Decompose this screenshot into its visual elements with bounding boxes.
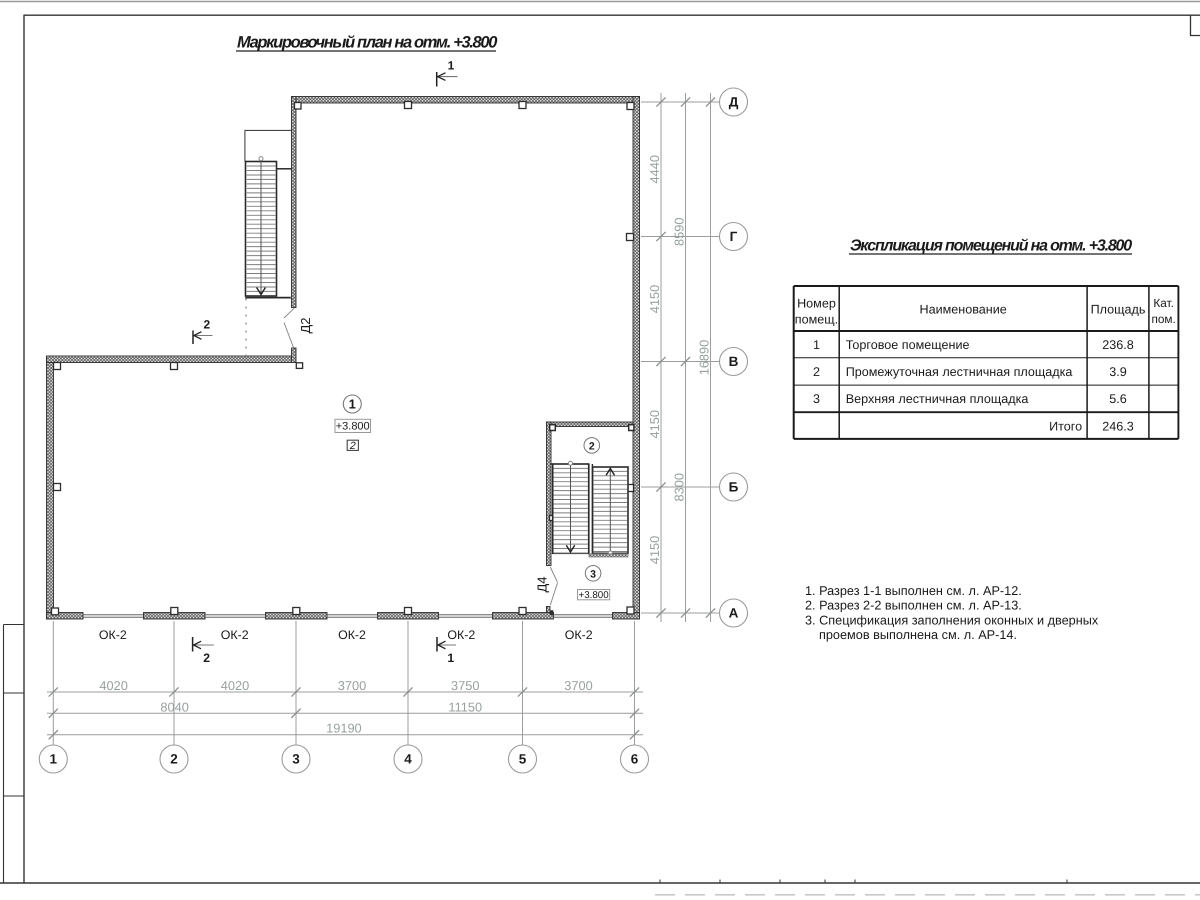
svg-text:Д2: Д2 bbox=[298, 317, 313, 333]
svg-text:4150: 4150 bbox=[647, 536, 662, 564]
svg-text:4150: 4150 bbox=[647, 285, 662, 313]
svg-text:6: 6 bbox=[631, 752, 639, 767]
svg-text:1: 1 bbox=[447, 651, 454, 665]
svg-text:4020: 4020 bbox=[221, 678, 249, 693]
svg-text:2: 2 bbox=[204, 318, 211, 332]
svg-text:Б: Б bbox=[729, 480, 739, 495]
svg-text:1: 1 bbox=[349, 397, 356, 412]
svg-text:Кат.: Кат. bbox=[1153, 296, 1174, 310]
svg-text:3. Спецификация заполнения око: 3. Спецификация заполнения оконных и две… bbox=[805, 613, 1099, 627]
svg-text:1: 1 bbox=[448, 59, 455, 73]
svg-text:3700: 3700 bbox=[564, 678, 592, 693]
svg-text:246.3: 246.3 bbox=[1102, 420, 1134, 434]
svg-text:пом.: пом. bbox=[1151, 312, 1175, 326]
svg-text:8300: 8300 bbox=[672, 473, 687, 501]
svg-text:Г: Г bbox=[730, 229, 738, 244]
svg-text:2: 2 bbox=[589, 441, 595, 453]
svg-text:4: 4 bbox=[404, 752, 412, 767]
svg-text:+3.800: +3.800 bbox=[336, 421, 370, 433]
svg-text:16890: 16890 bbox=[697, 340, 712, 376]
svg-text:А: А bbox=[729, 606, 739, 621]
svg-text:ОК-2: ОК-2 bbox=[99, 628, 127, 642]
svg-text:2. Разрез 2-2 выполнен см. л.: 2. Разрез 2-2 выполнен см. л. АР-13. bbox=[805, 599, 1022, 613]
svg-text:2: 2 bbox=[349, 440, 356, 452]
svg-text:Маркировочный план на отм. +3.: Маркировочный план на отм. +3.800 bbox=[237, 34, 498, 52]
svg-text:19190: 19190 bbox=[326, 721, 362, 736]
svg-text:помещ.: помещ. bbox=[795, 313, 838, 327]
svg-text:Д: Д bbox=[729, 95, 739, 110]
svg-text:проемов выполнена см. л. АР-14: проемов выполнена см. л. АР-14. bbox=[819, 628, 1017, 642]
svg-text:Итого: Итого bbox=[1049, 420, 1082, 434]
svg-text:ОК-2: ОК-2 bbox=[338, 628, 366, 642]
svg-text:3.9: 3.9 bbox=[1109, 365, 1127, 379]
svg-text:3: 3 bbox=[590, 569, 596, 581]
svg-text:Площадь: Площадь bbox=[1091, 303, 1146, 317]
svg-text:2: 2 bbox=[203, 651, 210, 665]
svg-text:3750: 3750 bbox=[451, 678, 479, 693]
svg-text:1: 1 bbox=[50, 752, 58, 767]
svg-text:3: 3 bbox=[292, 752, 300, 767]
svg-text:3: 3 bbox=[813, 392, 820, 406]
svg-text:5.6: 5.6 bbox=[1109, 392, 1127, 406]
svg-text:Д4: Д4 bbox=[534, 576, 549, 592]
svg-text:5: 5 bbox=[519, 752, 527, 767]
svg-text:1: 1 bbox=[813, 338, 820, 352]
svg-text:4150: 4150 bbox=[647, 410, 662, 438]
svg-text:4020: 4020 bbox=[99, 678, 127, 693]
svg-text:Верхняя лестничная площадка: Верхняя лестничная площадка bbox=[846, 392, 1029, 406]
svg-text:8040: 8040 bbox=[160, 699, 188, 714]
svg-text:Промежуточная лестничная площа: Промежуточная лестничная площадка bbox=[846, 365, 1073, 379]
svg-text:В: В bbox=[729, 354, 739, 369]
svg-text:8590: 8590 bbox=[672, 218, 687, 246]
svg-text:ОК-2: ОК-2 bbox=[221, 628, 249, 642]
svg-text:3700: 3700 bbox=[338, 678, 366, 693]
svg-text:Номер: Номер bbox=[797, 297, 836, 311]
svg-text:236.8: 236.8 bbox=[1102, 338, 1134, 352]
svg-text:11150: 11150 bbox=[448, 699, 482, 714]
svg-text:+3.800: +3.800 bbox=[578, 590, 609, 601]
svg-text:2: 2 bbox=[813, 365, 820, 379]
svg-text:Экспликация помещений на отм.: Экспликация помещений на отм. +3.800 bbox=[850, 238, 1132, 255]
svg-text:Торговое помещение: Торговое помещение bbox=[846, 338, 970, 352]
svg-text:1. Разрез 1-1 выполнен см. л.: 1. Разрез 1-1 выполнен см. л. АР-12. bbox=[805, 584, 1022, 598]
svg-text:4440: 4440 bbox=[647, 155, 662, 183]
svg-text:ОК-2: ОК-2 bbox=[447, 628, 475, 642]
svg-text:Наименование: Наименование bbox=[919, 303, 1006, 317]
svg-text:ОК-2: ОК-2 bbox=[565, 628, 593, 642]
svg-text:2: 2 bbox=[170, 752, 178, 767]
